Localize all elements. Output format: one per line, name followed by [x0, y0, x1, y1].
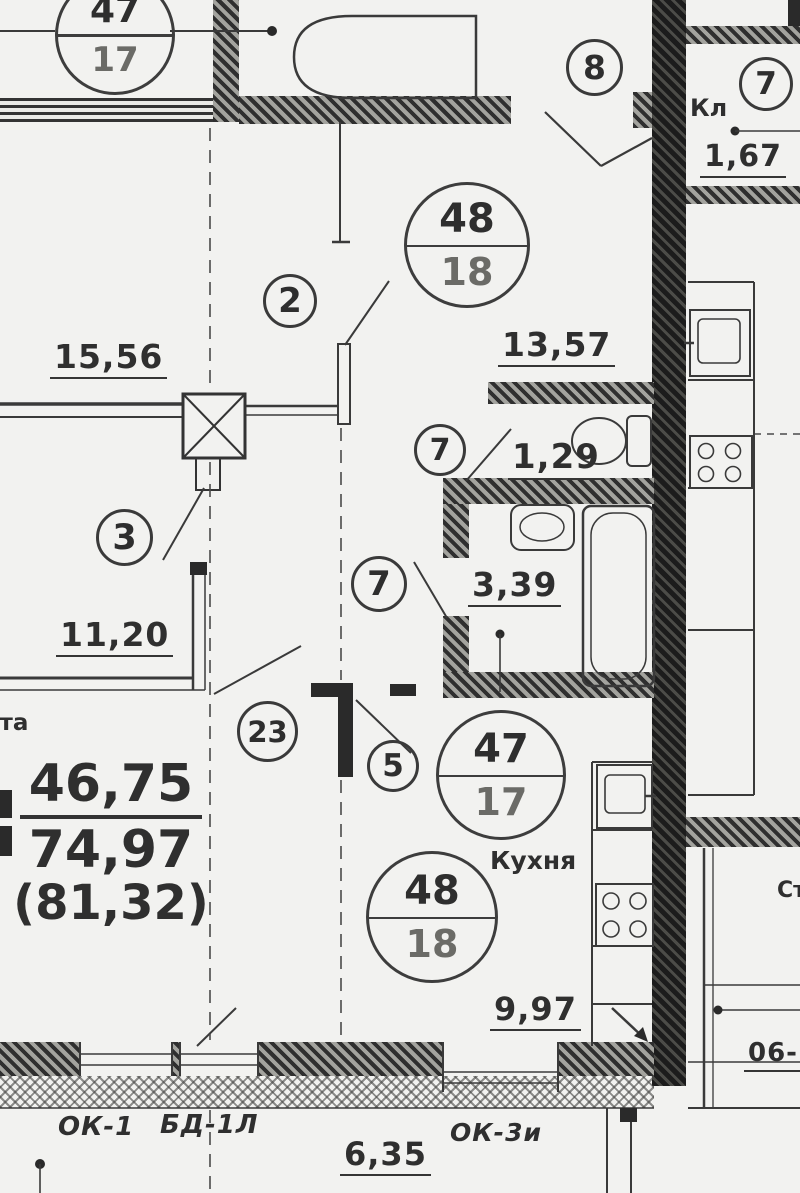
stamp-divider — [58, 34, 172, 37]
stamp-apt47-kitchen: 47 17 — [436, 710, 566, 840]
stamp-apt48-top: 48 18 — [404, 182, 530, 308]
axis-mark-7-bath: 7 — [351, 556, 407, 612]
stamp-number: 48 — [439, 196, 495, 242]
opening-label-ok3i: ОК-3и — [450, 1120, 542, 1145]
room-label-closet: Кл — [690, 96, 727, 120]
sink-icon — [511, 505, 574, 550]
axis-mark-2: 2 — [263, 274, 317, 328]
stamp-number: 48 — [404, 868, 460, 914]
stamp-number: 47 — [90, 0, 140, 31]
room-label-kitchen: Кухня — [490, 848, 576, 873]
neighbor-sink-icon — [684, 310, 750, 376]
window-openings — [80, 1042, 558, 1092]
room-label-fragment-left: ата — [0, 712, 28, 735]
stamp-apt48-kitchen: 48 18 — [366, 851, 498, 983]
area-label-room-left: 11,20 — [56, 618, 173, 657]
leader-lines — [0, 26, 800, 1193]
apartment-area-summary: 46,75 74,97 (81,32) — [8, 756, 214, 930]
bathtub-top-icon — [294, 16, 476, 98]
label-fragment-right: Ст — [777, 880, 800, 902]
opening-label-bd1l: БД-1Л — [160, 1112, 258, 1138]
axis-mark-5: 5 — [367, 740, 419, 792]
opening-label-ok1: ОК-1 — [58, 1114, 134, 1140]
stamp-number: 47 — [473, 726, 529, 772]
dimension-bottom-width: 6,35 — [340, 1138, 431, 1176]
stamp-denominator: 18 — [406, 922, 459, 966]
area-label-closet: 1,67 — [700, 142, 786, 178]
total-area-value: 74,97 — [29, 822, 193, 878]
area-label-bathroom: 3,39 — [468, 568, 561, 607]
stamp-denominator: 17 — [475, 780, 528, 824]
column-symbol — [183, 394, 245, 490]
floor-plan: 47 17 48 18 47 17 48 18 2 3 5 7 7 7 8 23… — [0, 0, 800, 1193]
stamp-denominator: 17 — [91, 40, 138, 80]
axis-mark-8: 8 — [566, 39, 623, 96]
stamp-denominator: 18 — [441, 250, 494, 294]
axis-mark-3: 3 — [96, 509, 153, 566]
kitchen-counter — [592, 762, 652, 1046]
area-label-kitchen: 9,97 — [490, 993, 581, 1031]
axis-mark-23: 23 — [237, 701, 298, 762]
kitchen-sink-icon — [597, 765, 656, 828]
axis-mark-7-wc: 7 — [414, 424, 466, 476]
bathtub-icon — [583, 506, 654, 686]
area-label-room-top: 15,56 — [50, 340, 167, 379]
summary-fraction-line — [20, 815, 202, 819]
total-area-with-balcony-value: (81,32) — [13, 878, 209, 930]
interior-walls — [0, 122, 800, 1193]
dimension-right-partial: 06- — [744, 1040, 800, 1072]
living-area-value: 46,75 — [29, 756, 193, 812]
stamp-divider — [369, 917, 495, 920]
stove-icon — [596, 884, 653, 946]
axis-mark-7-closet: 7 — [739, 57, 793, 111]
stamp-divider — [407, 245, 527, 248]
area-label-hall: 13,57 — [498, 328, 615, 367]
neighbor-stove-icon — [690, 436, 752, 488]
stamp-divider — [439, 775, 563, 778]
neighbor-counter — [688, 282, 800, 1108]
area-label-wc: 1,29 — [508, 440, 604, 480]
